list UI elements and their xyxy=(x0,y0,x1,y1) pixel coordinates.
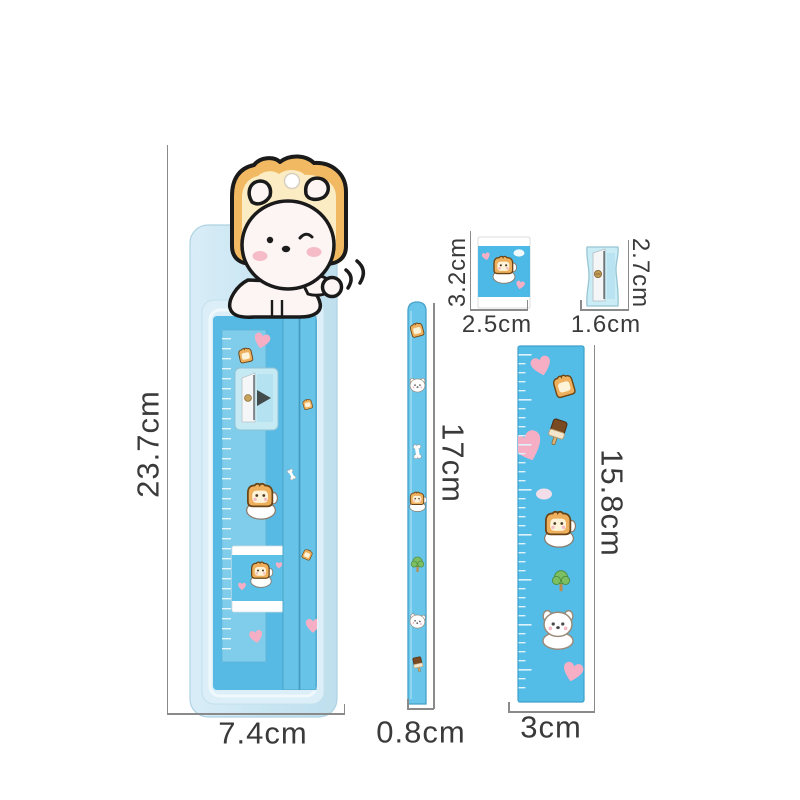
inner-eraser xyxy=(232,546,290,612)
dog-paw xyxy=(323,278,342,297)
motion-lines-icon xyxy=(346,261,363,288)
inner-sharpener xyxy=(235,368,278,430)
package-width-line xyxy=(167,713,345,715)
ruler-photo xyxy=(512,342,590,706)
dog-face-icon xyxy=(410,378,425,392)
pencil-width-line xyxy=(407,708,434,710)
eraser-photo xyxy=(468,232,534,312)
sharpener-height-label: 2.7cm xyxy=(628,238,652,308)
hang-hole xyxy=(285,174,300,189)
pencil-photo xyxy=(404,299,432,707)
product-dimension-image: 23.7cm 7.4cm 17cm 0.8cm 15.8cm 3cm 3.2cm… xyxy=(0,0,800,800)
puppy-icon xyxy=(543,611,573,650)
package-interior xyxy=(213,273,320,690)
dog-face xyxy=(242,201,334,289)
sharpener-width-label: 1.6cm xyxy=(571,313,641,337)
package-width-label: 7.4cm xyxy=(218,718,307,749)
eraser-height-label: 3.2cm xyxy=(446,237,470,307)
package-height-line xyxy=(167,145,169,713)
inner-pencils xyxy=(283,273,320,690)
eraser-width-label: 2.5cm xyxy=(462,313,532,337)
ruler-width-label: 3cm xyxy=(520,712,582,743)
pencil-height-label: 17cm xyxy=(438,423,469,503)
sharpener-photo xyxy=(578,243,626,311)
pencil-height-line xyxy=(433,303,435,709)
pencil-width-label: 0.8cm xyxy=(376,717,465,748)
stationery-set-package-photo xyxy=(180,148,370,723)
package-height-label: 23.7cm xyxy=(133,390,164,498)
dog-character-header-card xyxy=(230,156,364,317)
ruler-height-label: 15.8cm xyxy=(597,449,628,557)
